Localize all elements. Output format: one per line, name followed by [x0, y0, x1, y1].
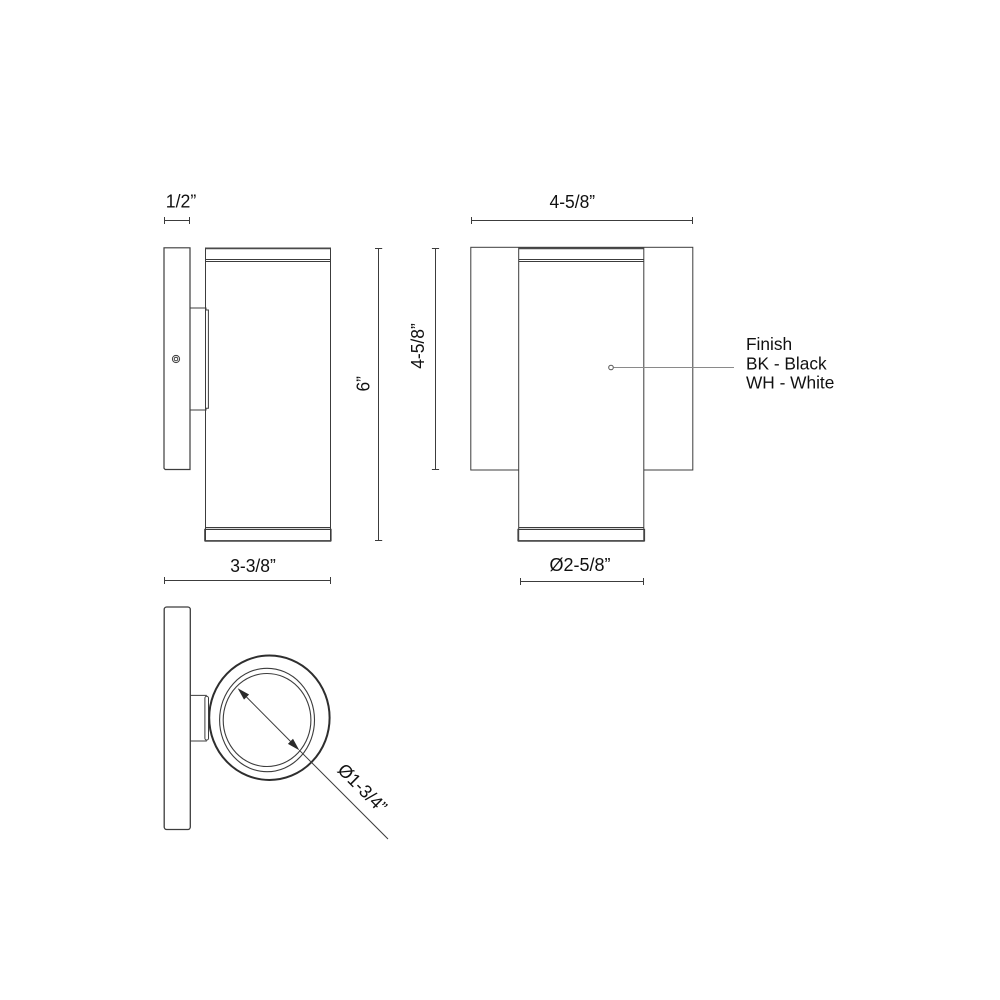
svg-text:4-5/8”: 4-5/8”: [408, 323, 428, 369]
svg-text:6”: 6”: [353, 376, 373, 392]
svg-text:Ø2-5/8”: Ø2-5/8”: [550, 555, 611, 575]
svg-text:4-5/8”: 4-5/8”: [550, 192, 596, 212]
svg-text:BK - Black: BK - Black: [746, 353, 827, 373]
svg-text:1/2”: 1/2”: [166, 192, 197, 212]
svg-text:Finish: Finish: [746, 334, 792, 354]
svg-text:WH - White: WH - White: [746, 373, 834, 393]
svg-text:3-3/8”: 3-3/8”: [230, 556, 276, 576]
